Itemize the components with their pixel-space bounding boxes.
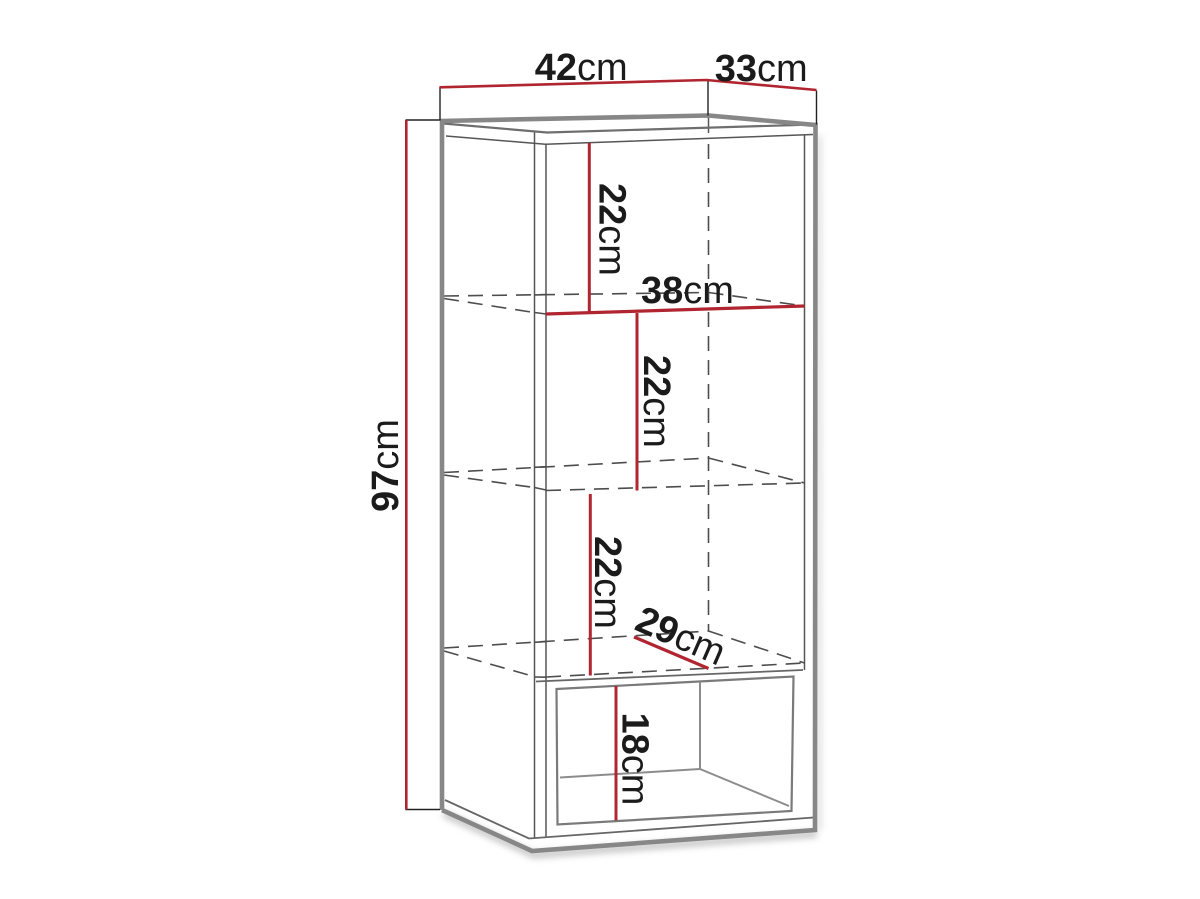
svg-text:38cm: 38cm: [641, 270, 734, 312]
svg-text:18cm: 18cm: [614, 713, 656, 806]
svg-text:42cm: 42cm: [535, 47, 628, 89]
svg-text:22cm: 22cm: [586, 536, 628, 629]
svg-text:97cm: 97cm: [365, 419, 407, 512]
svg-text:22cm: 22cm: [635, 355, 677, 448]
svg-text:33cm: 33cm: [715, 48, 808, 90]
svg-text:29cm: 29cm: [629, 599, 731, 675]
svg-text:22cm: 22cm: [591, 183, 633, 276]
